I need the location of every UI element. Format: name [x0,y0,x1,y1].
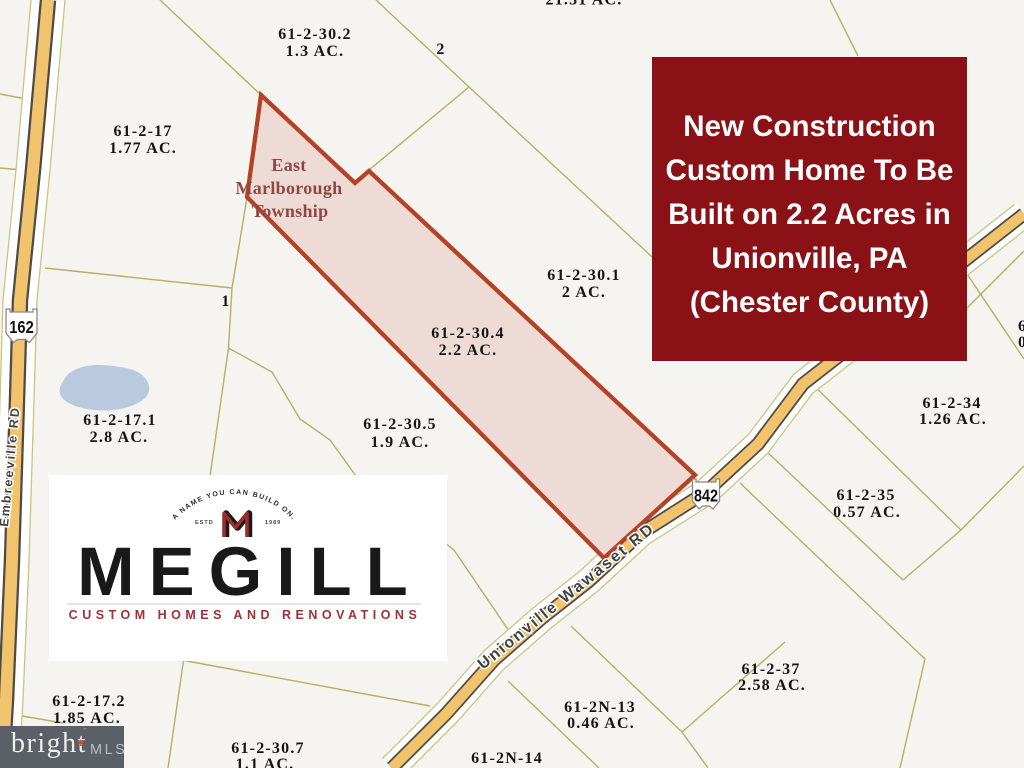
svg-text:0.9 AC.: 0.9 AC. [1018,334,1024,351]
svg-text:61-2-30.1: 61-2-30.1 [547,267,620,284]
svg-text:Township: Township [252,201,329,221]
svg-text:61-2-17: 61-2-17 [113,123,172,140]
svg-text:CUSTOM HOMES AND RENOVATIONS: CUSTOM HOMES AND RENOVATIONS [69,608,422,622]
svg-text:61-2-36: 61-2-36 [1018,318,1024,335]
svg-text:2.8 AC.: 2.8 AC. [90,429,149,446]
svg-text:61-2-30.2: 61-2-30.2 [278,26,351,43]
svg-text:1.26 AC.: 1.26 AC. [919,411,987,428]
svg-text:1.77 AC.: 1.77 AC. [109,140,177,157]
svg-text:842: 842 [694,486,718,506]
svg-text:ESTD: ESTD [195,520,214,526]
svg-text:61-2-17.1: 61-2-17.1 [83,412,156,429]
svg-text:Unionville Wawaset RD: Unionville Wawaset RD [475,520,659,673]
svg-text:61-2N-14: 61-2N-14 [471,750,543,767]
svg-text:1.1 AC.: 1.1 AC. [236,756,295,768]
svg-text:MEGILL: MEGILL [77,533,422,610]
svg-text:1.85 AC.: 1.85 AC. [53,710,121,727]
svg-text:2 AC.: 2 AC. [562,284,606,301]
svg-text:61-2-17.2: 61-2-17.2 [52,693,125,710]
svg-text:2.58 AC.: 2.58 AC. [738,677,806,694]
svg-text:0.57 AC.: 0.57 AC. [833,504,901,521]
svg-text:1989: 1989 [265,520,281,526]
svg-text:61-2-37: 61-2-37 [741,661,800,678]
svg-text:61-2-35: 61-2-35 [836,487,895,504]
svg-text:61-2-34: 61-2-34 [922,395,981,412]
svg-text:61-2N-13: 61-2N-13 [564,699,636,716]
svg-text:2.2 AC.: 2.2 AC. [439,342,498,359]
svg-text:1.9 AC.: 1.9 AC. [371,434,430,451]
svg-text:61-2-30.7: 61-2-30.7 [231,740,304,757]
svg-text:Marlborough: Marlborough [236,178,343,198]
svg-text:1.3 AC.: 1.3 AC. [286,43,345,60]
svg-text:21.31 AC.: 21.31 AC. [545,0,622,9]
svg-text:2: 2 [436,41,445,58]
svg-text:61-2-30.4: 61-2-30.4 [431,325,504,342]
svg-text:A NAME YOU CAN BUILD ON.: A NAME YOU CAN BUILD ON. [171,489,297,522]
svg-text:1: 1 [221,293,230,310]
svg-text:162: 162 [9,317,34,337]
svg-text:East: East [271,155,306,175]
svg-text:0.46 AC.: 0.46 AC. [567,715,635,732]
svg-text:61-2-30.5: 61-2-30.5 [363,416,436,433]
